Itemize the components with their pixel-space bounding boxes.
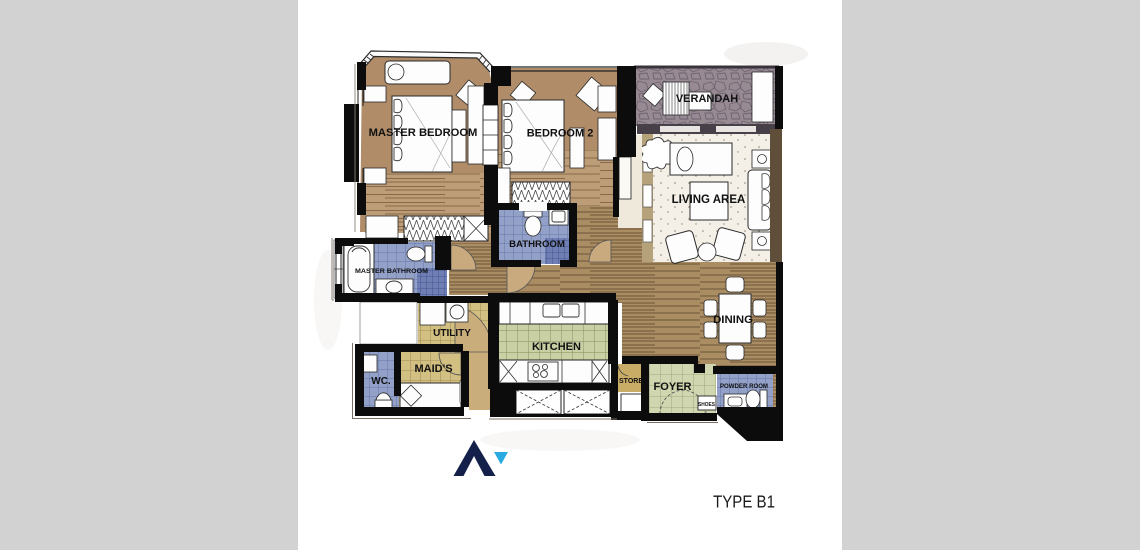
svg-text:FOYER: FOYER: [654, 381, 692, 393]
svg-text:SHOES: SHOES: [698, 402, 716, 408]
svg-text:KITCHEN: KITCHEN: [532, 341, 581, 353]
svg-text:LIVING AREA: LIVING AREA: [672, 194, 746, 206]
svg-text:TYPE B1: TYPE B1: [713, 492, 775, 512]
svg-text:STORE: STORE: [619, 378, 643, 385]
svg-text:BEDROOM 2: BEDROOM 2: [527, 128, 594, 140]
svg-text:UTILITY: UTILITY: [433, 328, 471, 339]
svg-text:MAID'S: MAID'S: [414, 363, 452, 375]
svg-text:BATHROOM: BATHROOM: [509, 239, 565, 250]
svg-text:MASTER BATHROOM: MASTER BATHROOM: [355, 268, 429, 275]
svg-text:VERANDAH: VERANDAH: [676, 93, 738, 105]
svg-text:POWDER ROOM: POWDER ROOM: [720, 384, 768, 390]
svg-text:MASTER BEDROOM: MASTER BEDROOM: [369, 127, 478, 139]
svg-text:WC.: WC.: [371, 376, 391, 387]
svg-text:DINING: DINING: [713, 314, 753, 326]
